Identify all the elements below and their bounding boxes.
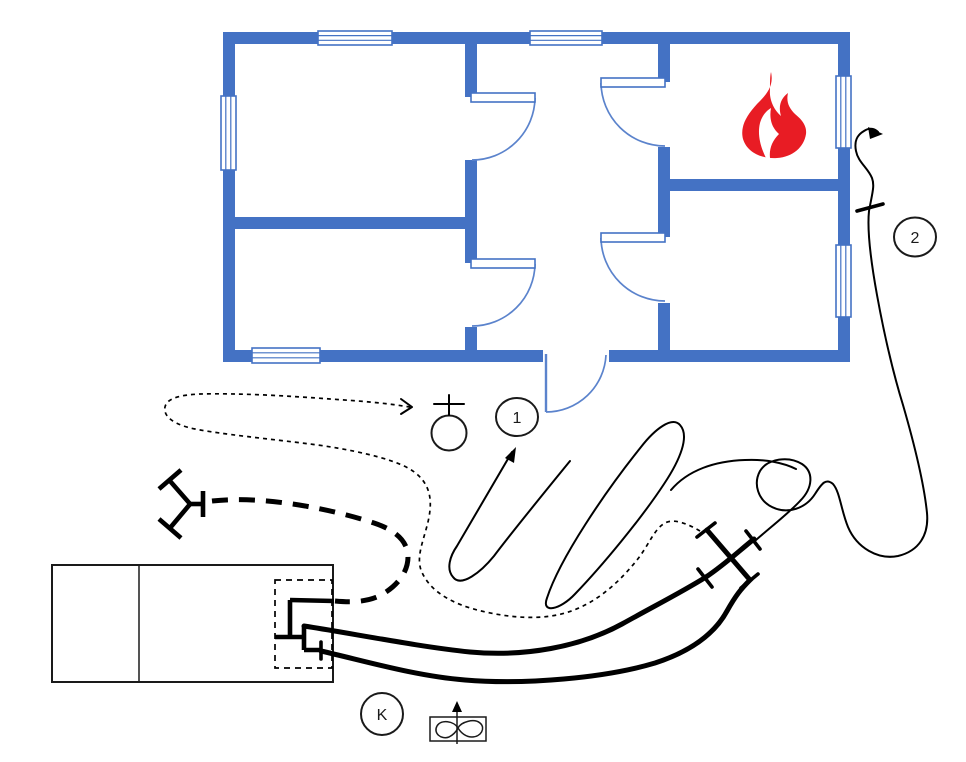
fire-engine (52, 565, 334, 682)
route-arrowhead (401, 399, 412, 414)
label-circle-k: K (361, 693, 403, 735)
line1-nozzle-run (449, 452, 570, 581)
building-floorplan (221, 31, 851, 412)
label-circle-1: 1 (496, 398, 538, 436)
line1-connector (671, 460, 796, 490)
attack-line-1 (449, 422, 796, 608)
label-2-text: 2 (911, 230, 920, 247)
line2-arrowhead (868, 127, 883, 139)
window (221, 96, 236, 170)
hose-lower (321, 530, 750, 682)
hose-upper (304, 539, 754, 653)
window (252, 348, 320, 363)
label-k-text: K (377, 707, 388, 724)
window (318, 31, 392, 45)
building-outer-wall (229, 38, 844, 356)
label-1-text: 1 (513, 410, 522, 427)
line1-spare-loop (546, 422, 684, 608)
fan-arrowhead (452, 701, 462, 712)
tactical-diagram: 1 2 K (0, 0, 966, 762)
hydrant-icon (432, 395, 467, 451)
label-circle-2: 2 (894, 218, 936, 257)
window (836, 76, 851, 148)
window (530, 31, 602, 45)
window (836, 245, 851, 317)
front-door-gap (543, 349, 609, 363)
supply-hoses (304, 530, 754, 682)
hose-distributor-icon (159, 470, 204, 538)
ventilation-fan-icon (430, 701, 486, 744)
fan-infinity-glyph (436, 721, 483, 738)
